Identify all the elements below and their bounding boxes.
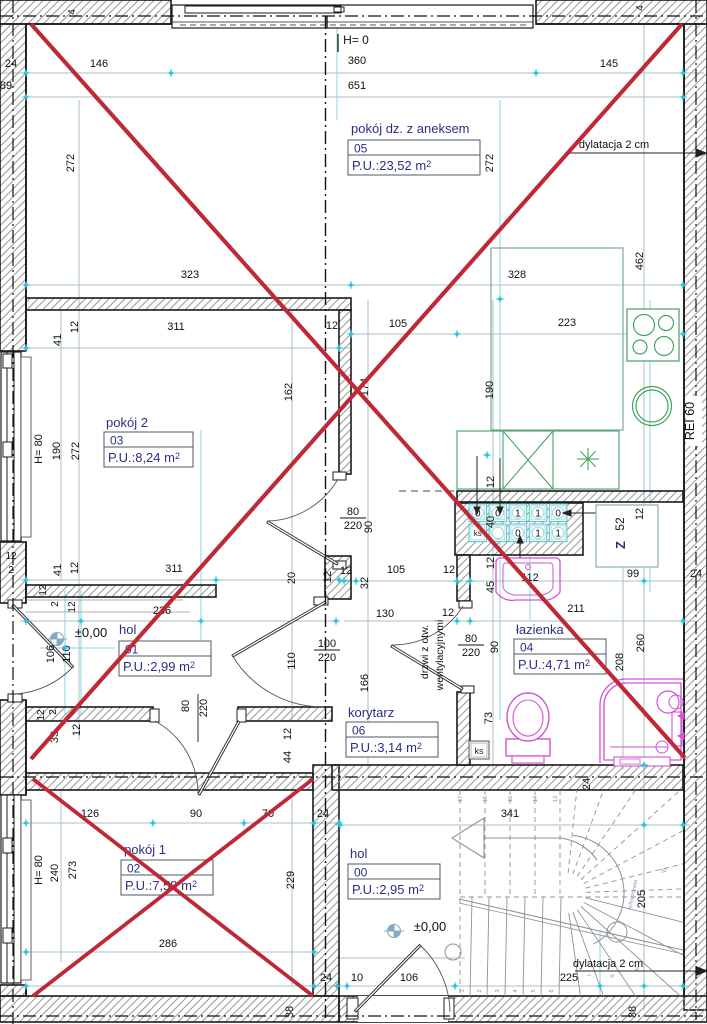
svg-text:106: 106 [45,645,57,663]
svg-text:2: 2 [8,565,14,576]
svg-text:12: 12 [340,565,352,577]
svg-text:45: 45 [485,581,497,593]
svg-text:273: 273 [67,861,79,879]
svg-text:2: 2 [50,601,61,607]
svg-text:12: 12 [5,551,17,562]
svg-text:P.U.:4,71 m2: P.U.:4,71 m2 [518,657,590,672]
svg-text:P.U.:2,99 m2: P.U.:2,99 m2 [123,659,195,674]
svg-text:02: 02 [127,862,141,876]
svg-text:14: 14 [533,796,539,802]
svg-text:2: 2 [477,989,483,992]
svg-text:20: 20 [286,572,298,584]
svg-text:223: 223 [558,317,576,329]
svg-text:89: 89 [0,80,12,92]
svg-text:drzwi z otw.: drzwi z otw. [419,625,431,679]
svg-text:651: 651 [348,80,366,92]
svg-text:P.U.:2,95 m2: P.U.:2,95 m2 [352,882,424,897]
svg-text:12: 12 [69,562,81,574]
svg-text:P.U.:23,52 m2: P.U.:23,52 m2 [352,158,431,173]
svg-text:P.U.:3,14 m2: P.U.:3,14 m2 [350,740,422,755]
svg-text:12: 12 [326,320,338,332]
svg-text:24: 24 [5,58,17,70]
svg-text:90: 90 [190,808,202,820]
svg-text:±0,00: ±0,00 [414,919,446,934]
svg-text:44: 44 [282,751,294,763]
svg-text:80: 80 [347,506,359,518]
svg-text:220: 220 [318,652,336,664]
svg-text:hol: hol [350,846,367,861]
svg-text:ks: ks [475,746,485,756]
svg-text:16: 16 [483,796,489,802]
svg-text:łazienka: łazienka [516,622,564,637]
svg-text:1: 1 [460,989,466,992]
svg-text:pokój dz. z aneksem: pokój dz. z aneksem [351,121,470,136]
svg-text:100: 100 [318,638,336,650]
svg-text:24: 24 [320,972,332,984]
svg-text:110: 110 [286,652,298,670]
svg-text:105: 105 [389,318,407,330]
svg-text:12: 12 [322,571,334,583]
svg-text:220: 220 [462,647,480,659]
svg-text:341: 341 [501,808,519,820]
svg-text:162: 162 [283,383,295,401]
svg-text:80: 80 [180,700,192,712]
svg-text:17: 17 [458,796,464,802]
svg-text:286: 286 [159,938,177,950]
svg-text:03: 03 [110,434,124,448]
svg-text:41: 41 [52,564,64,576]
svg-text:10: 10 [660,868,667,875]
svg-text:360: 360 [348,55,366,67]
svg-text:H= 80: H= 80 [33,434,45,464]
svg-text:12: 12 [67,601,78,613]
svg-text:13: 13 [553,796,559,802]
svg-text:3: 3 [495,989,501,992]
svg-text:12: 12 [69,321,81,333]
svg-text:±0,00: ±0,00 [75,625,107,640]
svg-text:41: 41 [52,334,64,346]
svg-text:2: 2 [48,709,59,715]
svg-text:Z: Z [613,541,628,549]
svg-text:4: 4 [67,9,78,15]
svg-text:12: 12 [485,476,497,488]
svg-text:4: 4 [513,989,519,992]
svg-text:dylatacja 2 cm: dylatacja 2 cm [579,139,649,151]
svg-text:323: 323 [181,269,199,281]
svg-text:229: 229 [285,871,297,889]
svg-text:208: 208 [614,653,626,671]
svg-text:5: 5 [531,989,537,992]
svg-text:146: 146 [90,58,108,70]
svg-text:130: 130 [376,608,394,620]
svg-text:32: 32 [359,577,371,589]
svg-text:15: 15 [508,796,514,802]
svg-text:38: 38 [284,1006,296,1018]
svg-text:korytarz: korytarz [348,705,394,720]
svg-text:106: 106 [400,972,418,984]
svg-text:12: 12 [443,564,455,576]
svg-text:90: 90 [489,641,501,653]
svg-text:12: 12 [634,508,646,520]
svg-text:272: 272 [65,154,77,172]
svg-text:4: 4 [635,5,646,11]
svg-text:90: 90 [363,521,375,533]
svg-text:24: 24 [317,808,329,820]
svg-text:311: 311 [167,321,185,333]
svg-text:145: 145 [600,58,618,70]
svg-text:pokój 2: pokój 2 [106,415,148,430]
svg-text:dylatacja 2 cm: dylatacja 2 cm [573,958,643,970]
svg-text:272: 272 [70,442,82,460]
svg-text:P.U.:8,24 m2: P.U.:8,24 m2 [108,450,180,465]
svg-text:12: 12 [282,728,294,740]
svg-text:0: 0 [555,508,561,519]
svg-text:190: 190 [51,442,63,460]
svg-text:240: 240 [49,864,61,882]
svg-text:311: 311 [165,563,183,575]
svg-text:12: 12 [38,584,49,596]
svg-text:1: 1 [515,508,521,519]
svg-text:328: 328 [508,269,526,281]
svg-text:12: 12 [71,724,83,736]
svg-text:05: 05 [354,142,368,156]
svg-text:190: 190 [484,381,496,399]
svg-text:24: 24 [690,568,702,580]
svg-text:H= 0: H= 0 [343,33,369,47]
svg-text:12: 12 [485,557,497,569]
svg-text:00: 00 [354,866,368,880]
svg-text:73: 73 [483,712,495,724]
svg-text:04: 04 [520,641,534,655]
svg-text:REI 60: REI 60 [683,402,697,440]
svg-text:220: 220 [344,520,362,532]
svg-text:1: 1 [555,528,561,539]
svg-text:99: 99 [627,568,639,580]
svg-text:12: 12 [442,607,454,619]
svg-text:260: 260 [635,634,647,652]
svg-text:1: 1 [535,508,541,519]
svg-text:1: 1 [535,528,541,539]
svg-text:272: 272 [484,154,496,172]
svg-text:wentylacyjnymi: wentylacyjnymi [434,620,446,692]
svg-text:220: 220 [198,699,210,717]
svg-text:211: 211 [567,603,585,615]
svg-text:225: 225 [560,972,578,984]
svg-text:06: 06 [352,724,366,738]
svg-text:38: 38 [627,1006,639,1018]
svg-text:105: 105 [387,564,405,576]
svg-text:6: 6 [549,989,555,992]
svg-text:40: 40 [485,516,497,528]
svg-text:205: 205 [636,890,648,908]
svg-text:52: 52 [613,517,627,531]
svg-text:hol: hol [119,622,136,637]
svg-text:12: 12 [36,709,47,721]
svg-text:10: 10 [351,972,363,984]
svg-text:462: 462 [634,252,646,270]
svg-text:H= 80: H= 80 [33,855,45,885]
svg-text:80: 80 [465,633,477,645]
svg-text:24: 24 [581,778,593,790]
svg-text:166: 166 [359,674,371,692]
